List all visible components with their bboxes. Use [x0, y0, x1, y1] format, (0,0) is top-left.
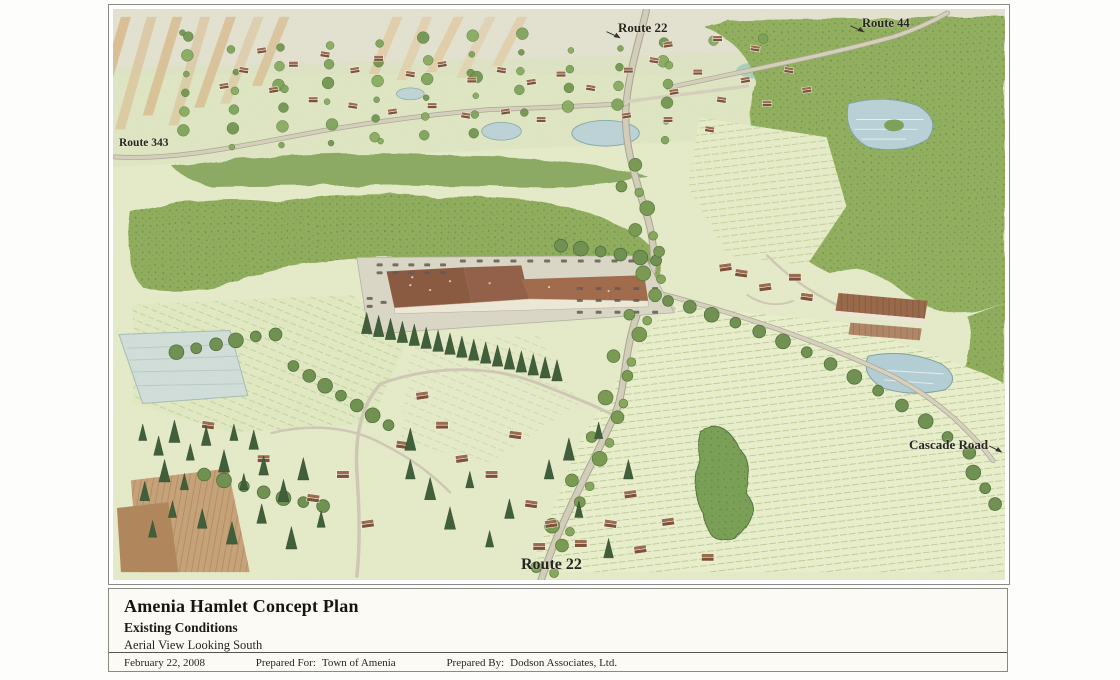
map-label-route-22-south: Route 22 — [521, 557, 582, 573]
prepared-for-label: Prepared For: — [256, 657, 316, 669]
prepared-for: Prepared For:Town of Amenia — [256, 657, 396, 669]
prepared-by: Prepared By:Dodson Associates, Ltd. — [446, 657, 617, 669]
map-label-route-44: Route 44 — [862, 17, 910, 30]
prepared-for-value: Town of Amenia — [322, 657, 396, 669]
map-label-route-343: Route 343 — [119, 138, 169, 150]
view-caption: Aerial View Looking South — [124, 638, 1007, 653]
prepared-by-label: Prepared By: — [446, 657, 504, 669]
map-label-route-22-north: Route 22 — [618, 21, 667, 34]
prepared-by-value: Dodson Associates, Ltd. — [510, 657, 617, 669]
plan-date: February 22, 2008 — [124, 657, 205, 669]
title-block: Amenia Hamlet Concept Plan Existing Cond… — [108, 588, 1008, 672]
plan-subtitle: Existing Conditions — [124, 620, 1007, 636]
map-frame: Route 22 Route 44 Route 343 Cascade Road… — [108, 4, 1010, 585]
plan-title: Amenia Hamlet Concept Plan — [124, 596, 1007, 617]
title-block-footer: February 22, 2008 Prepared For:Town of A… — [124, 657, 665, 669]
map-label-cascade-road: Cascade Road — [909, 438, 988, 451]
title-block-divider — [109, 652, 1007, 653]
paper-grain-overlay — [113, 9, 1005, 580]
aerial-illustration — [113, 9, 1005, 580]
